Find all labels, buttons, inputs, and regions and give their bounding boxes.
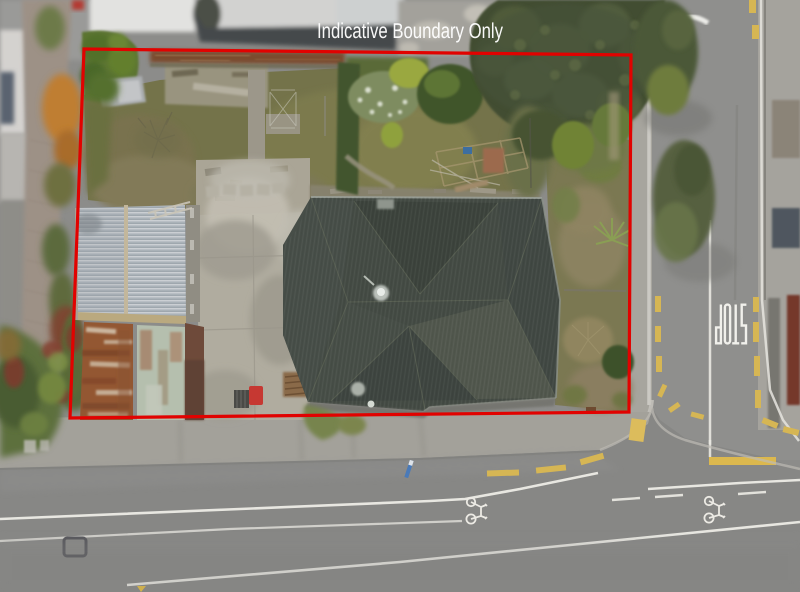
svg-text:Indicative Boundary Only: Indicative Boundary Only: [317, 19, 503, 43]
